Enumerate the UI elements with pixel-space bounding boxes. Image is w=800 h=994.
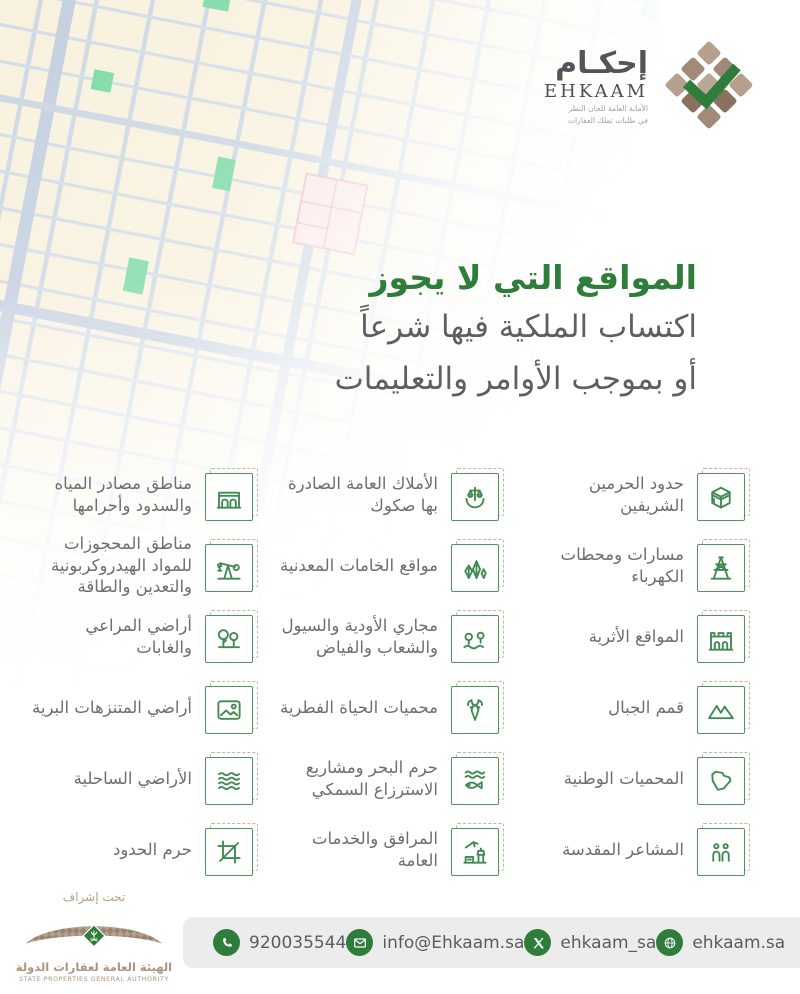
website-contact[interactable]: ehkaam.sa [656, 929, 785, 956]
phone-number: 920035544 [249, 933, 346, 953]
brand-name-arabic: إحكـام [544, 48, 648, 80]
grid-item-label: مناطق المحجوزات للمواد الهيدروكربونية وا… [32, 533, 192, 598]
pilgrims-icon [697, 823, 750, 876]
page-title-line3: أو بموجب الأوامر والتعليمات [335, 353, 697, 405]
grid-item-label: حدود الحرمين الشريفين [524, 473, 684, 517]
grid-item-label: حرم الحدود [113, 839, 192, 861]
park-landscape-icon [205, 681, 258, 734]
restricted-sites-grid: حدود الحرمين الشريفين الأملاك العامة الص… [18, 459, 750, 885]
grid-item-label: مجاري الأودية والسيول والشعاب والفياض [278, 615, 438, 659]
justice-scales-icon [451, 468, 504, 521]
grid-item-public-facilities: المرافق والخدمات العامة [264, 823, 504, 876]
valley-stream-icon [451, 610, 504, 663]
grid-item-label: الأراضي الساحلية [74, 768, 192, 790]
public-facilities-icon [451, 823, 504, 876]
website-url: ehkaam.sa [692, 933, 785, 953]
phone-icon [213, 929, 240, 956]
grid-item-label: المحميات الوطنية [564, 768, 684, 790]
twitter-contact[interactable]: ehkaam_sa [524, 929, 656, 956]
grid-item-wild-parks: أراضي المتنزهات البرية [18, 681, 258, 734]
twitter-handle: ehkaam_sa [560, 933, 656, 953]
grid-item-mountain-peaks: قمم الجبال [510, 681, 750, 734]
oil-pump-icon [205, 539, 258, 592]
ehkaam-logo: إحكـام EHKAAM الأمانة العامة للجان النظر… [544, 38, 756, 132]
deer-icon [451, 681, 504, 734]
email-icon [346, 929, 373, 956]
grid-item-water-sources-dams: مناطق مصادر المياه والسدود وأحرامها [18, 468, 258, 521]
page-title-line2: اكتساب الملكية فيها شرعاً [335, 301, 697, 353]
coastal-waves-icon [205, 752, 258, 805]
grid-item-haramain-borders: حدود الحرمين الشريفين [510, 468, 750, 521]
phone-contact[interactable]: 920035544 [213, 929, 346, 956]
mountain-peaks-icon [697, 681, 750, 734]
grid-item-label: مواقع الخامات المعدنية [280, 555, 438, 577]
grid-item-label: حرم البحر ومشاريع الاسترزاع السمكي [278, 757, 438, 801]
forest-trees-icon [205, 610, 258, 663]
globe-icon [656, 929, 683, 956]
authority-name-arabic: الهيئة العامة لعقارات الدولة [14, 961, 174, 975]
minerals-icon [451, 539, 504, 592]
grid-item-mineral-sites: مواقع الخامات المعدنية [264, 539, 504, 592]
email-contact[interactable]: info@Ehkaam.sa [346, 929, 524, 956]
grid-item-public-property-deeds: الأملاك العامة الصادرة بها صكوك [264, 468, 504, 521]
page-title: المواقع التي لا يجوز اكتساب الملكية فيها… [335, 256, 697, 405]
brand-name-latin: EHKAAM [544, 81, 648, 102]
grid-item-valleys-streams: مجاري الأودية والسيول والشعاب والفياض [264, 610, 504, 663]
brand-tagline-line2: في طلبات تملك العقارات [544, 115, 648, 127]
grid-item-label: المواقع الأثرية [589, 626, 684, 648]
grid-item-label: قمم الجبال [608, 697, 684, 719]
border-strip-icon [205, 823, 258, 876]
grid-item-national-reserves: المحميات الوطنية [510, 752, 750, 805]
grid-item-label: المشاعر المقدسة [562, 839, 684, 861]
supervision-block: تحت إشراف الهيئة العامة لعقارات الدولة S… [14, 890, 174, 983]
dam-icon [205, 468, 258, 521]
email-address: info@Ehkaam.sa [382, 933, 524, 953]
grid-item-holy-sites: المشاعر المقدسة [510, 823, 750, 876]
grid-item-label: المرافق والخدمات العامة [278, 828, 438, 872]
grid-item-label: أراضي المتنزهات البرية [32, 697, 192, 719]
brand-tagline-line1: الأمانة العامة للجان النظر [544, 103, 648, 115]
grid-item-electricity-paths: مسارات ومحطات الكهرباء [510, 539, 750, 592]
heritage-building-icon [697, 610, 750, 663]
electricity-pylon-icon [697, 539, 750, 592]
supervision-label: تحت إشراف [14, 890, 174, 904]
ehkaam-logo-mark-icon [662, 38, 756, 132]
grid-item-wildlife-reserves: محميات الحياة الفطرية [264, 681, 504, 734]
grid-item-sea-aquaculture: حرم البحر ومشاريع الاسترزاع السمكي [264, 752, 504, 805]
saudi-map-icon [697, 752, 750, 805]
kaaba-icon [697, 468, 750, 521]
grid-item-archaeological-sites: المواقع الأثرية [510, 610, 750, 663]
authority-name-english: STATE PROPERTIES GENERAL AUTHORITY [14, 976, 174, 983]
grid-item-coastal-lands: الأراضي الساحلية [18, 752, 258, 805]
grid-item-hydrocarbon-reserves: مناطق المحجوزات للمواد الهيدروكربونية وا… [18, 533, 258, 598]
state-properties-authority-logo-icon [20, 907, 168, 957]
contact-bar: 920035544 info@Ehkaam.sa ehkaam_sa ehkaa… [183, 917, 800, 968]
grid-item-label: الأملاك العامة الصادرة بها صكوك [278, 473, 438, 517]
grid-item-border-strip: حرم الحدود [18, 823, 258, 876]
grid-item-label: أراضي المراعي والغابات [32, 615, 192, 659]
page-title-line1: المواقع التي لا يجوز [335, 256, 697, 301]
fish-waves-icon [451, 752, 504, 805]
grid-item-pastures-forests: أراضي المراعي والغابات [18, 610, 258, 663]
grid-item-label: مسارات ومحطات الكهرباء [524, 544, 684, 588]
grid-item-label: مناطق مصادر المياه والسدود وأحرامها [32, 473, 192, 517]
grid-item-label: محميات الحياة الفطرية [280, 697, 438, 719]
x-twitter-icon [524, 929, 551, 956]
